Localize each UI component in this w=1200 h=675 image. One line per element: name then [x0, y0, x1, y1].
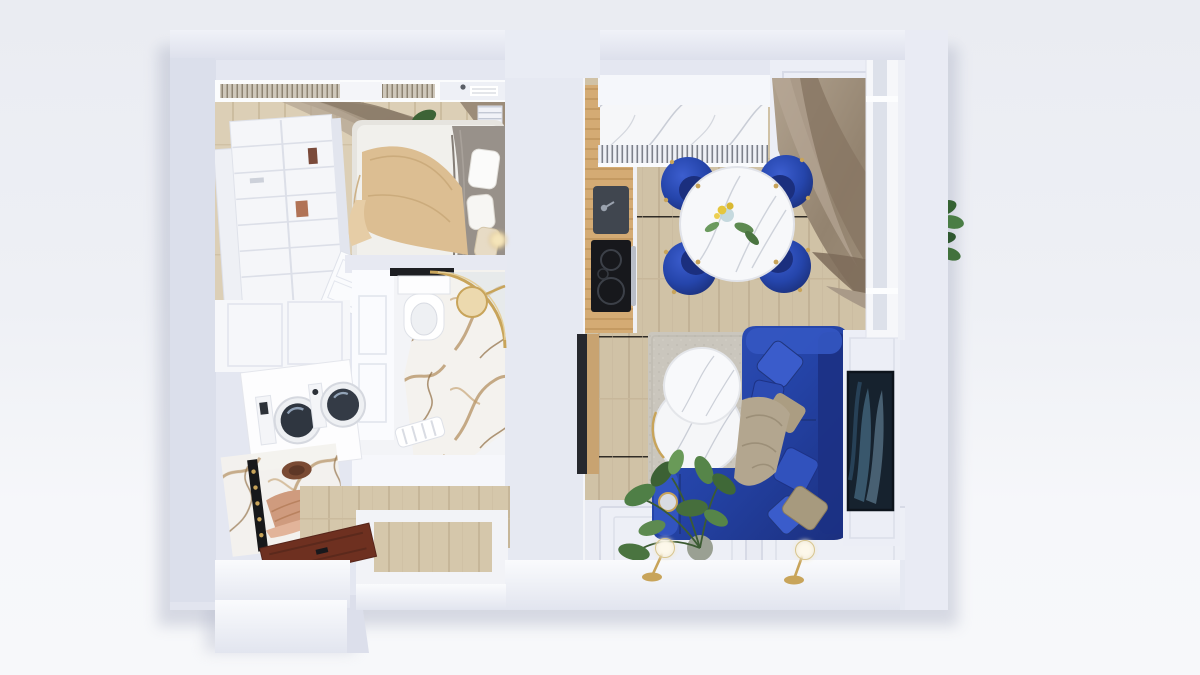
hall-cabinets — [215, 300, 350, 372]
shower-head — [457, 287, 487, 317]
tall-unit — [577, 334, 587, 474]
bedside-lamp — [490, 232, 506, 248]
sofa-top-arm — [746, 328, 842, 354]
floorplan-render — [0, 0, 1200, 675]
bottom-walls — [170, 560, 948, 653]
center-wall — [505, 30, 585, 610]
vestibule-face — [215, 600, 347, 653]
cooktop — [591, 240, 636, 312]
entry-threshold — [356, 510, 508, 584]
room-bathroom — [345, 255, 507, 493]
dining-table — [680, 167, 794, 281]
oven-handle — [631, 246, 636, 306]
dining-set — [661, 155, 813, 295]
kitchen-sink — [593, 186, 629, 234]
floorplan-canvas — [0, 0, 1200, 675]
tv-wall — [843, 330, 900, 546]
wardrobe-decor-item — [308, 148, 318, 165]
upper-cabinets — [598, 75, 770, 107]
bedroom-window-blinds — [220, 84, 435, 98]
curtain-knob — [460, 84, 465, 89]
backsplash — [600, 105, 768, 147]
